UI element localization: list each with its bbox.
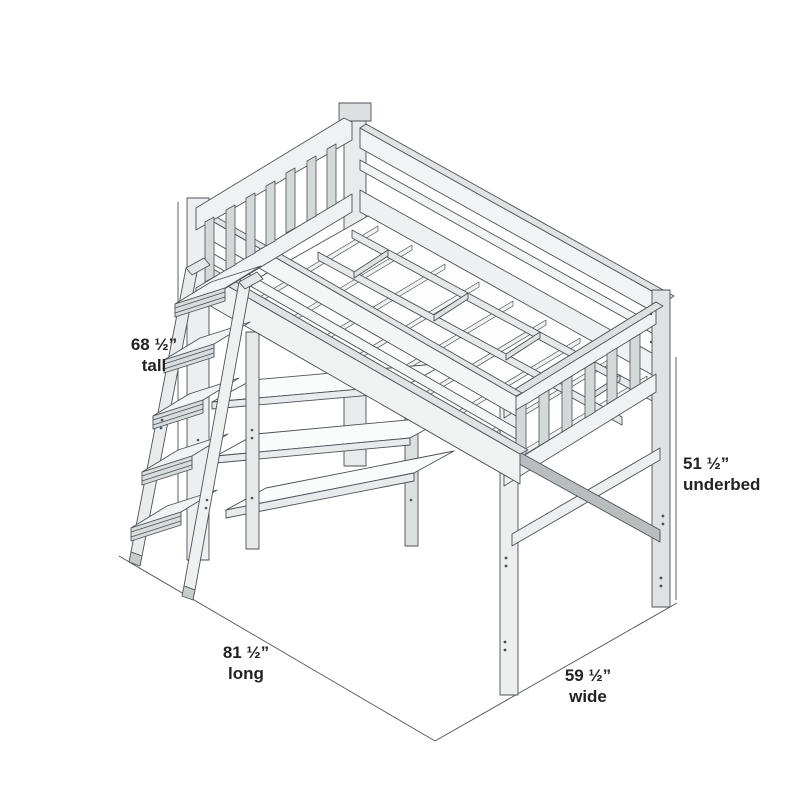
dimension-label-underbed: 51 ½” underbed <box>683 453 793 495</box>
dimension-label-wide: 59 ½” wide <box>540 665 636 707</box>
loft-bed-dimension-diagram: 68 ½” tall 51 ½” underbed 81 ½” long 59 … <box>0 0 800 800</box>
dimension-word-tall: tall <box>108 355 200 376</box>
shelf-left-post <box>246 332 259 549</box>
back-right-leg <box>652 290 670 607</box>
dimension-word-underbed: underbed <box>683 474 793 495</box>
dimension-label-long: 81 ½” long <box>198 642 294 684</box>
dimension-word-long: long <box>198 663 294 684</box>
dimension-label-tall: 68 ½” tall <box>108 334 200 376</box>
loft-bed-drawing <box>0 0 800 800</box>
dimension-value-underbed: 51 ½” <box>683 453 793 474</box>
shelf-bottom-surface <box>226 451 454 510</box>
dimension-value-wide: 59 ½” <box>540 665 636 686</box>
dimension-word-wide: wide <box>540 686 636 707</box>
dimension-value-tall: 68 ½” <box>108 334 200 355</box>
dimension-value-long: 81 ½” <box>198 642 294 663</box>
